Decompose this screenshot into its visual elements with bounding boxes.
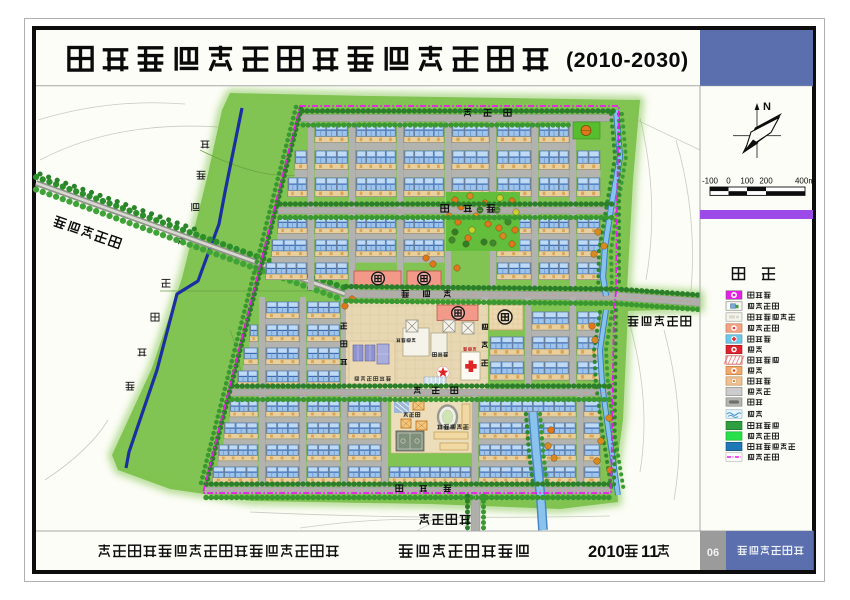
svg-text:06: 06 xyxy=(707,547,719,559)
svg-text:2010: 2010 xyxy=(588,543,625,561)
svg-text:N: N xyxy=(763,101,771,113)
svg-text:-100: -100 xyxy=(702,177,719,186)
svg-text:400m: 400m xyxy=(795,177,815,186)
svg-text:200: 200 xyxy=(759,177,773,186)
svg-text:100: 100 xyxy=(740,177,754,186)
svg-text:11: 11 xyxy=(641,543,658,561)
svg-text:(2010-2030): (2010-2030) xyxy=(566,48,689,72)
svg-text:0: 0 xyxy=(726,177,731,186)
